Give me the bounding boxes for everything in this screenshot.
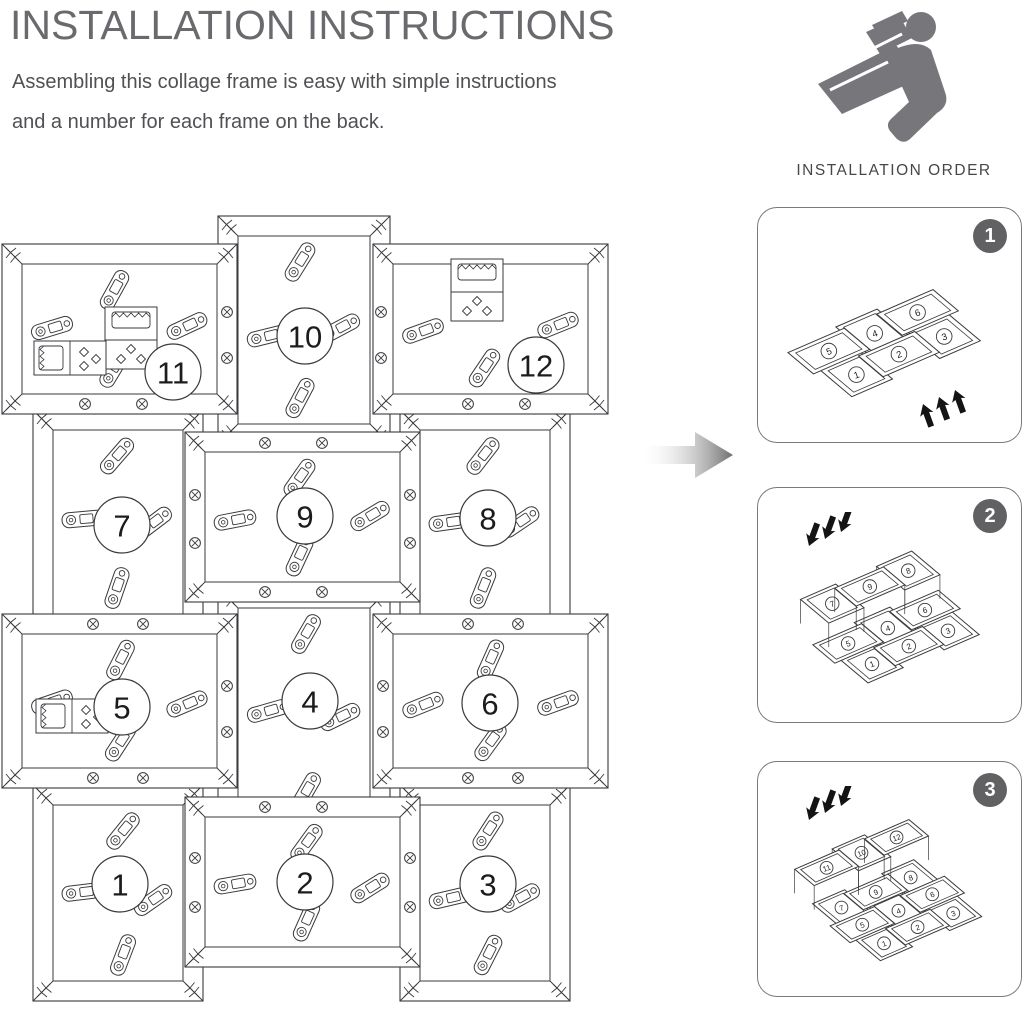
open-manual-page — [818, 45, 912, 114]
screw-icon — [317, 587, 328, 598]
page-title: INSTALLATION INSTRUCTIONS — [10, 2, 614, 49]
frame-11-back: 11 — [2, 244, 237, 414]
push-direction-arrow — [802, 521, 823, 548]
frame-number-5: 5 — [113, 691, 130, 726]
step-3-panel: 3 784139562101112 — [757, 761, 1022, 997]
push-arrows — [802, 512, 855, 548]
frame-9-back: 9 — [185, 432, 420, 602]
push-arrows — [802, 786, 855, 822]
push-direction-arrow — [818, 788, 839, 815]
frame-number-2: 2 — [296, 866, 313, 901]
frame-number-6: 6 — [481, 687, 498, 722]
intro-text-line-1: Assembling this collage frame is easy wi… — [12, 71, 557, 93]
screw-icon — [405, 490, 416, 501]
frame-number-8: 8 — [479, 502, 496, 537]
frame-2-back: 2 — [185, 797, 420, 967]
flow-arrow-icon — [640, 424, 740, 486]
sawtooth-hanger-icon — [34, 341, 106, 375]
screw-icon — [317, 802, 328, 813]
step-2-panel: 2 413562789 — [757, 487, 1022, 723]
screw-icon — [222, 353, 233, 364]
frame-number-10: 10 — [288, 320, 322, 355]
screw-icon — [260, 587, 271, 598]
screw-icon — [260, 438, 271, 449]
screw-icon — [138, 773, 149, 784]
frame-5-back: 5 — [2, 614, 237, 788]
screw-icon — [190, 853, 201, 864]
installation-order-label: INSTALLATION ORDER — [778, 162, 1010, 180]
sawtooth-hanger-icon — [451, 259, 503, 321]
person-reading-manual-icon — [804, 4, 984, 154]
push-direction-arrow — [932, 395, 953, 422]
screw-icon — [190, 538, 201, 549]
screw-icon — [463, 619, 474, 630]
frame-number-1: 1 — [111, 868, 128, 903]
screw-icon — [378, 681, 389, 692]
collage-back-diagram: 107841311129562 — [0, 198, 645, 1012]
screw-icon — [317, 438, 328, 449]
frame-number-9: 9 — [296, 500, 313, 535]
screw-icon — [463, 399, 474, 410]
screw-icon — [513, 619, 524, 630]
frame-8-back: 8 — [400, 410, 570, 634]
push-direction-arrow — [916, 402, 937, 429]
step-3-diagram: 784139562101112 — [763, 786, 1015, 994]
push-direction-arrow — [834, 786, 855, 808]
step-1-diagram: 413562 — [763, 232, 1015, 440]
screw-icon — [222, 307, 233, 318]
screw-icon — [260, 802, 271, 813]
installation-instructions-sheet: INSTALLATION INSTRUCTIONS Assembling thi… — [0, 0, 1024, 1017]
step-2-diagram: 413562789 — [763, 512, 1015, 720]
step-1-panel: 1 413562 — [757, 207, 1022, 443]
screw-icon — [520, 399, 531, 410]
intro-text: Assembling this collage frame is easy wi… — [12, 62, 557, 142]
frame-number-4: 4 — [301, 685, 318, 720]
screw-icon — [405, 902, 416, 913]
push-arrows — [916, 388, 969, 429]
frame-6-back: 6 — [373, 614, 608, 788]
screw-icon — [513, 773, 524, 784]
intro-text-line-2: and a number for each frame on the back. — [12, 111, 384, 133]
screw-icon — [463, 773, 474, 784]
installation-order-guide: INSTALLATION ORDER — [778, 4, 1010, 192]
frame-number-3: 3 — [479, 868, 496, 903]
frame-10-back: 10 — [218, 216, 390, 444]
push-direction-arrow — [834, 512, 855, 534]
frame-number-11: 11 — [157, 356, 189, 391]
push-direction-arrow — [802, 795, 823, 822]
screw-icon — [190, 902, 201, 913]
frame-number-12: 12 — [519, 349, 553, 384]
screw-icon — [405, 538, 416, 549]
screw-icon — [190, 490, 201, 501]
screw-icon — [80, 399, 91, 410]
screw-icon — [137, 399, 148, 410]
frame-12-back: 12 — [373, 244, 608, 414]
screw-icon — [376, 307, 387, 318]
frame-number-7: 7 — [113, 509, 130, 544]
frame-1-back: 1 — [33, 785, 203, 1001]
screw-icon — [405, 853, 416, 864]
screw-icon — [88, 619, 99, 630]
screw-icon — [222, 681, 233, 692]
screw-icon — [376, 353, 387, 364]
screw-icon — [88, 773, 99, 784]
push-direction-arrow — [818, 514, 839, 541]
screw-icon — [378, 727, 389, 738]
frame-7-back: 7 — [33, 410, 203, 634]
push-direction-arrow — [948, 388, 969, 415]
screw-icon — [222, 727, 233, 738]
flow-arrow-shape — [642, 432, 733, 478]
screw-icon — [138, 619, 149, 630]
frame-3-back: 3 — [400, 785, 570, 1001]
